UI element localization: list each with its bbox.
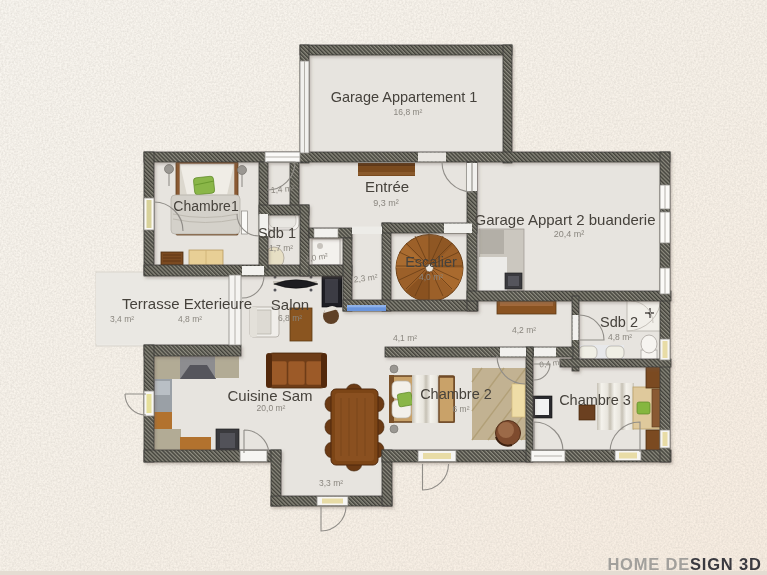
- svg-text:1,7 m²: 1,7 m²: [269, 243, 293, 253]
- svg-text:4,0 m²: 4,0 m²: [419, 272, 443, 282]
- svg-text:HOME DE: HOME DE: [607, 555, 690, 573]
- svg-text:SIGN 3D: SIGN 3D: [690, 555, 762, 573]
- svg-text:Entrée: Entrée: [365, 178, 409, 195]
- svg-text:20,0 m²: 20,0 m²: [257, 403, 286, 413]
- svg-text:4,2 m²: 4,2 m²: [512, 325, 536, 335]
- svg-text:4,8 m²: 4,8 m²: [608, 332, 632, 342]
- svg-text:16,8 m²: 16,8 m²: [394, 107, 423, 117]
- svg-text:Chambre 2: Chambre 2: [420, 386, 492, 402]
- svg-text:Terrasse Exterieure: Terrasse Exterieure: [122, 295, 252, 312]
- svg-text:3,4 m²: 3,4 m²: [110, 314, 134, 324]
- svg-text:Escalier: Escalier: [405, 254, 457, 270]
- svg-text:Sdb 2: Sdb 2: [600, 314, 638, 330]
- svg-text:3,3 m²: 3,3 m²: [319, 478, 343, 488]
- svg-text:4,8 m²: 4,8 m²: [178, 314, 202, 324]
- svg-text:Cuisine Sam: Cuisine Sam: [227, 387, 312, 404]
- svg-text:9,3 m²: 9,3 m²: [373, 198, 399, 208]
- svg-text:20,4 m²: 20,4 m²: [554, 229, 585, 239]
- svg-text:Chambre 3: Chambre 3: [559, 392, 631, 408]
- svg-text:4,1 m²: 4,1 m²: [393, 333, 417, 343]
- svg-text:Sdb 1: Sdb 1: [258, 225, 296, 241]
- svg-text:6,8 m²: 6,8 m²: [278, 313, 302, 323]
- svg-text:6 m²: 6 m²: [453, 404, 470, 414]
- svg-text:Garage Appart 2 buanderie: Garage Appart 2 buanderie: [475, 211, 656, 228]
- svg-text:Chambre1: Chambre1: [173, 198, 239, 214]
- svg-text:1,4 m²: 1,4 m²: [270, 183, 295, 195]
- svg-text:Salon: Salon: [271, 296, 309, 313]
- svg-text:Garage Appartement 1: Garage Appartement 1: [331, 89, 478, 105]
